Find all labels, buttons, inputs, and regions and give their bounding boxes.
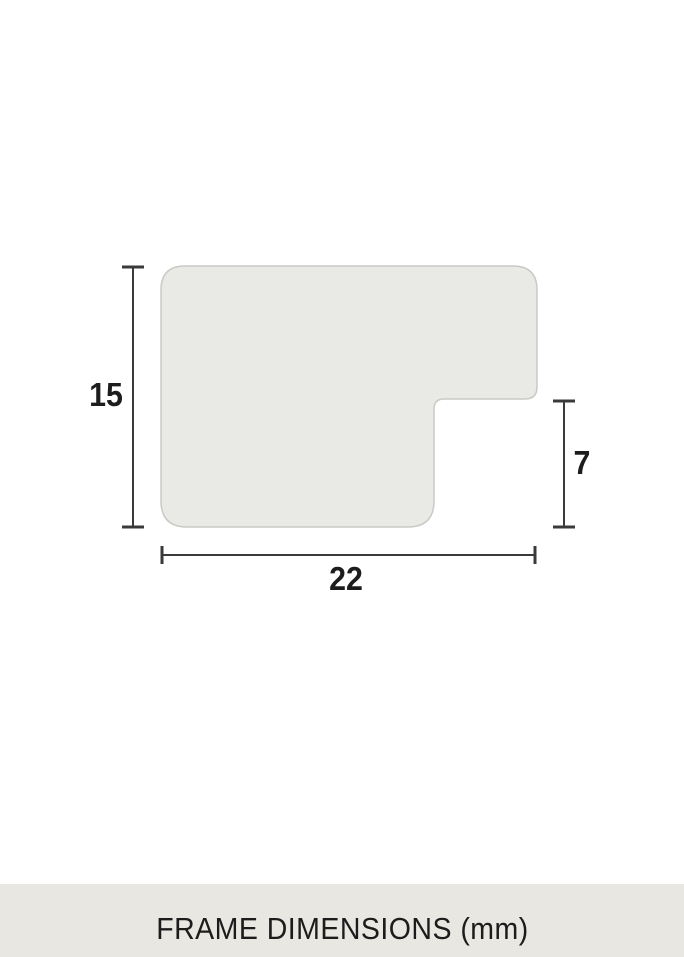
- caption-bar: FRAME DIMENSIONS (mm): [0, 884, 684, 957]
- frame-dimensions-diagram: 15 7 22 FRAME DIMENSIONS (mm): [0, 0, 684, 957]
- profile-diagram-svg: [0, 0, 684, 884]
- height-dimension-label: 15: [69, 377, 143, 413]
- frame-profile-shape: [161, 266, 537, 527]
- width-dimension-label: 22: [309, 561, 383, 597]
- caption-text: FRAME DIMENSIONS (mm): [156, 911, 528, 947]
- notch-dimension-label: 7: [545, 445, 619, 481]
